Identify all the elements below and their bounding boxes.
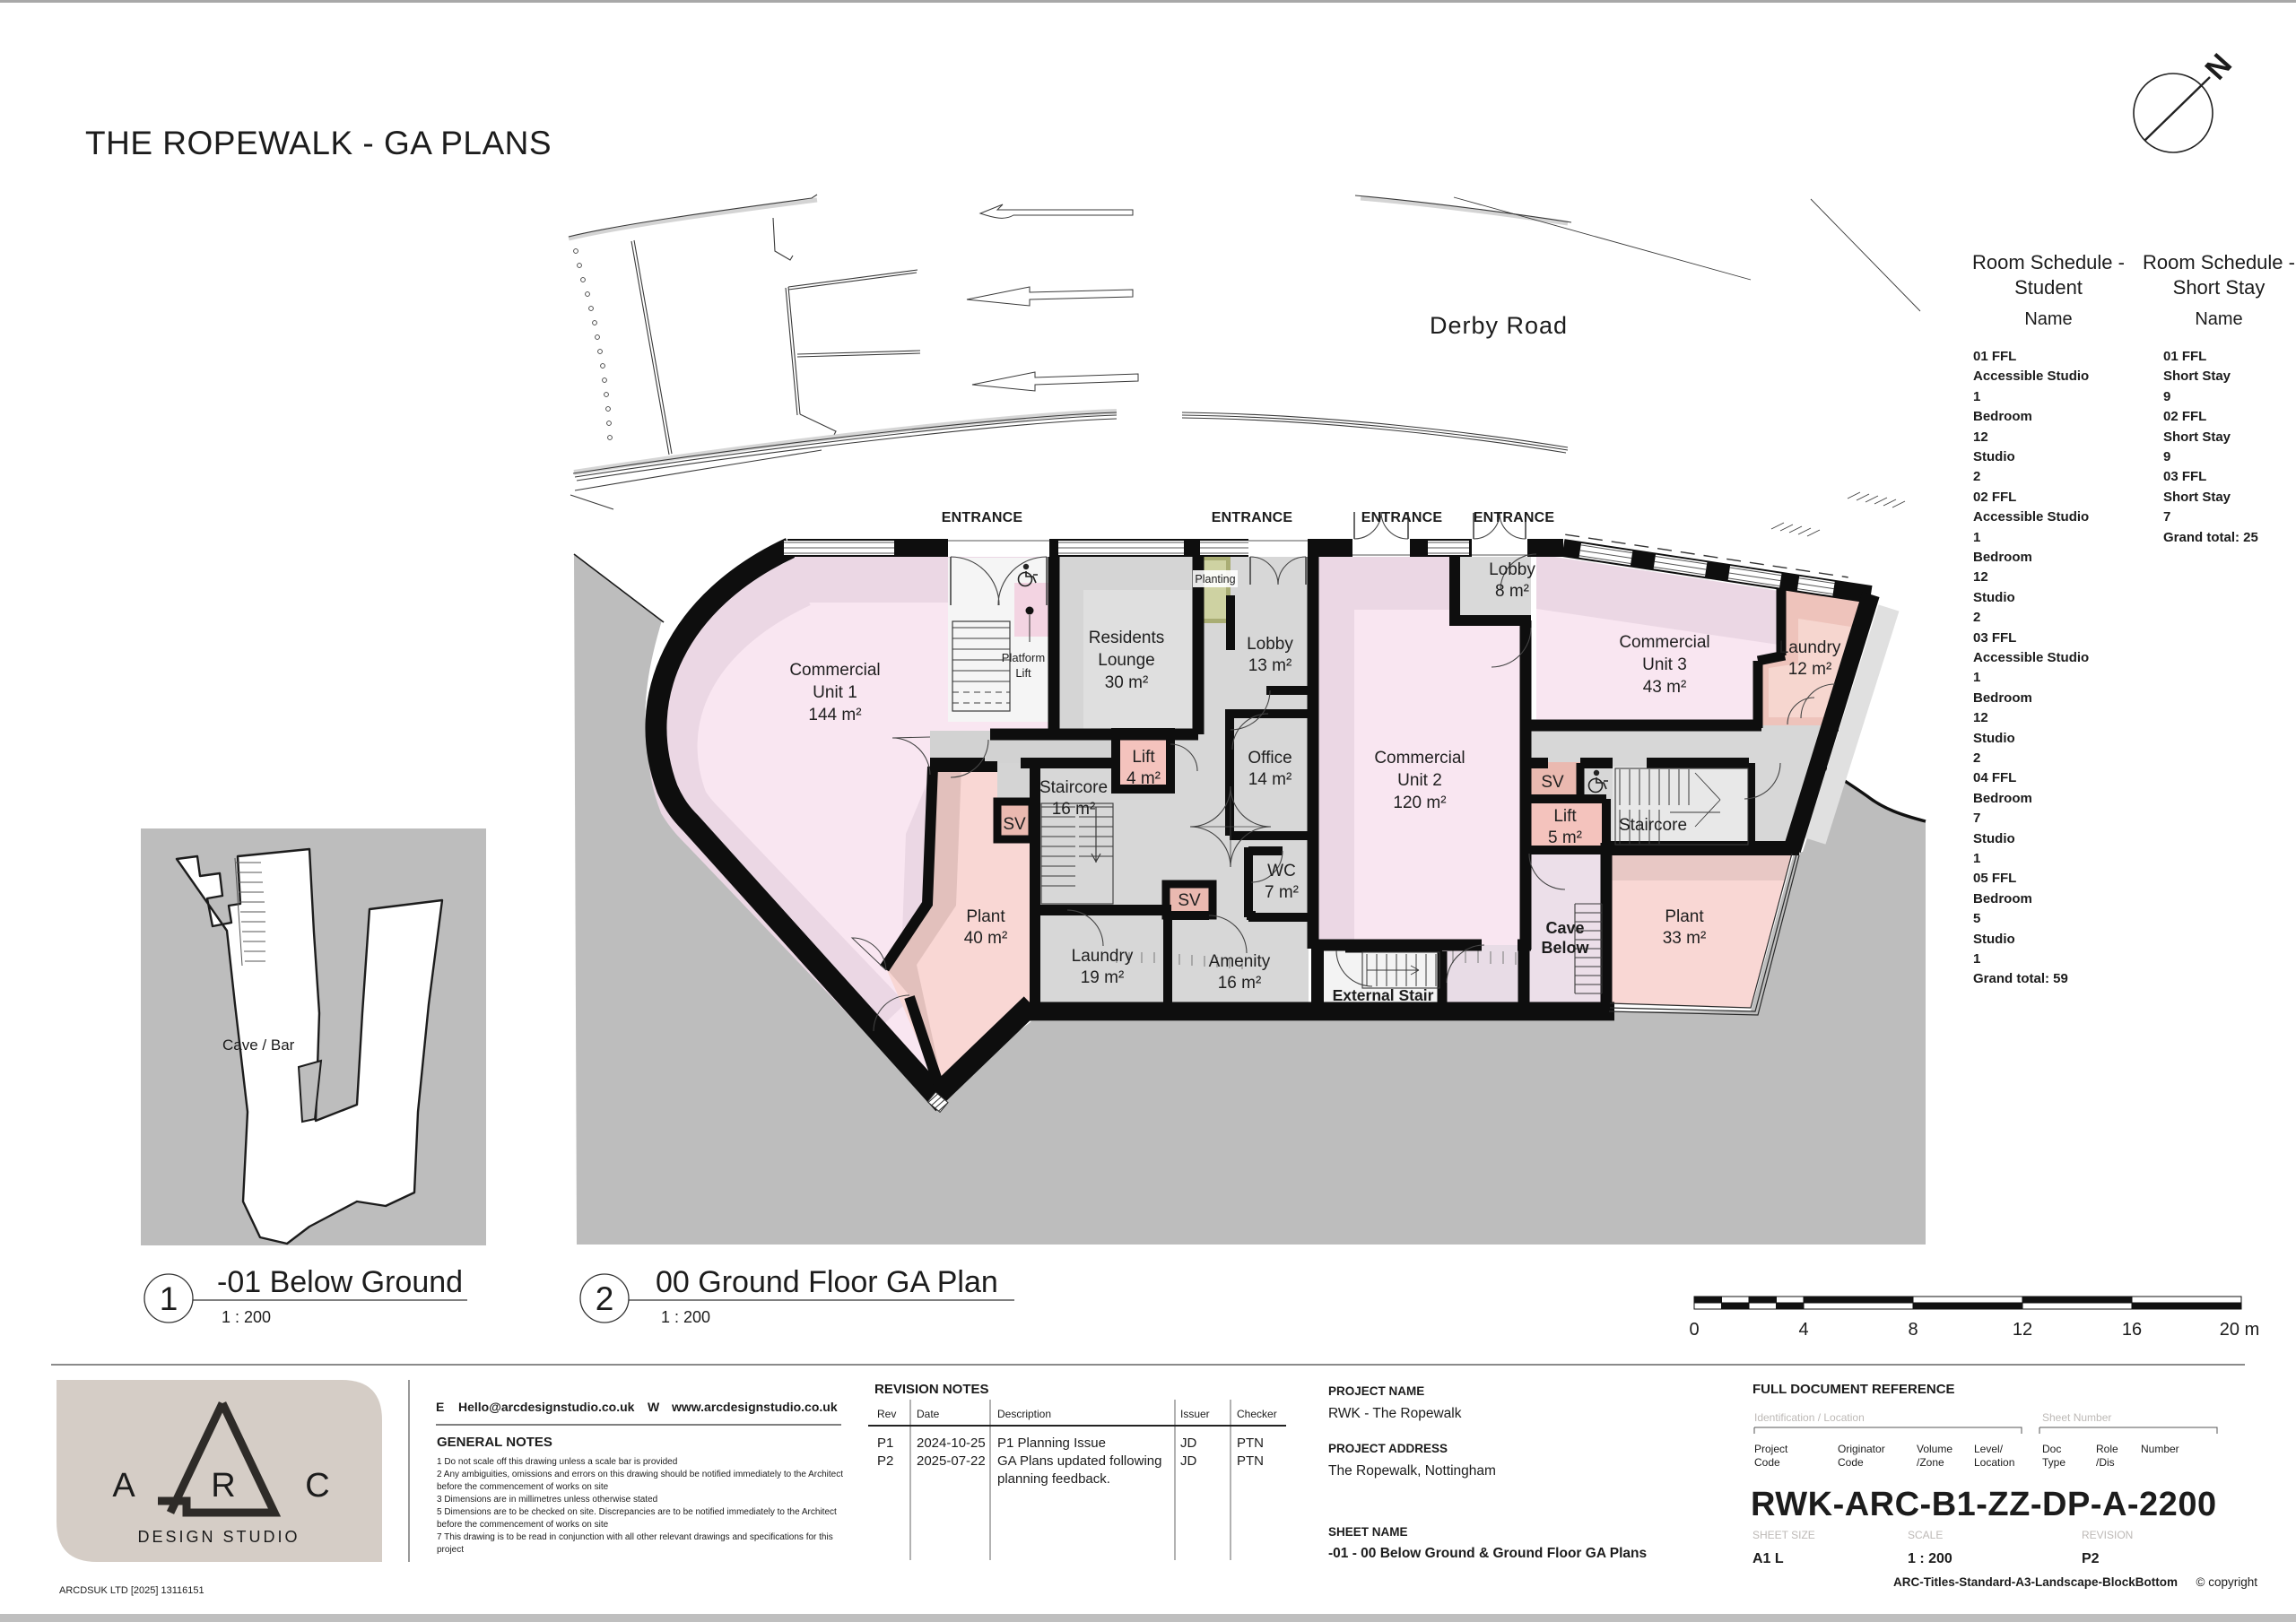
svg-text:REVISION: REVISION — [2082, 1529, 2133, 1541]
svg-text:Room Schedule -: Room Schedule - — [1972, 251, 2125, 273]
svg-text:5 m²: 5 m² — [1548, 828, 1582, 847]
svg-text:Unit 3: Unit 3 — [1642, 655, 1687, 674]
svg-text:19 m²: 19 m² — [1081, 968, 1125, 987]
svg-text:4: 4 — [1798, 1320, 1808, 1340]
svg-text:30 m²: 30 m² — [1105, 673, 1149, 692]
svg-text:2: 2 — [1973, 469, 1980, 484]
svg-text:www.arcdesignstudio.co.uk: www.arcdesignstudio.co.uk — [671, 1400, 838, 1414]
svg-text:Laundry: Laundry — [1072, 947, 1134, 966]
svg-text:Originator: Originator — [1838, 1443, 1885, 1455]
svg-text:P2: P2 — [877, 1453, 893, 1469]
svg-text:5 Dimensions are to be checked: 5 Dimensions are to be checked on site. … — [437, 1507, 837, 1517]
svg-text:12: 12 — [1973, 429, 1988, 445]
svg-text:PTN: PTN — [1237, 1453, 1264, 1469]
svg-text:Short Stay: Short Stay — [2173, 276, 2266, 299]
svg-text:ARC-Titles-Standard-A3-Landsca: ARC-Titles-Standard-A3-Landscape-BlockBo… — [1893, 1575, 2178, 1589]
svg-text:RWK-ARC-B1-ZZ-DP-A-2200: RWK-ARC-B1-ZZ-DP-A-2200 — [1751, 1486, 2217, 1523]
svg-text:A1 L: A1 L — [1752, 1551, 1784, 1566]
svg-text:REVISION NOTES: REVISION NOTES — [874, 1382, 989, 1397]
svg-text:12 m²: 12 m² — [1788, 660, 1832, 679]
svg-text:20 m: 20 m — [2220, 1320, 2259, 1340]
svg-text:Bedroom: Bedroom — [1973, 550, 2032, 565]
svg-text:Accessible Studio: Accessible Studio — [1973, 650, 2089, 665]
svg-text:7: 7 — [1973, 811, 1980, 826]
svg-text:13 m²: 13 m² — [1248, 656, 1292, 675]
svg-text:Level/: Level/ — [1974, 1443, 2004, 1455]
svg-text:Planting: Planting — [1195, 573, 1235, 585]
svg-text:40 m²: 40 m² — [964, 929, 1008, 948]
svg-text:planning feedback.: planning feedback. — [997, 1471, 1110, 1487]
svg-text:Studio: Studio — [1973, 831, 2015, 846]
svg-text:1: 1 — [1973, 389, 1980, 404]
svg-text:Description: Description — [997, 1408, 1051, 1420]
svg-text:before the commencement of wor: before the commencement of works on site — [437, 1482, 609, 1492]
svg-text:ENTRANCE: ENTRANCE — [1474, 510, 1555, 525]
svg-text:Studio: Studio — [1973, 932, 2015, 947]
svg-text:Sheet Number: Sheet Number — [2042, 1411, 2111, 1424]
svg-text:SHEET NAME: SHEET NAME — [1328, 1525, 1408, 1539]
svg-text:Bedroom: Bedroom — [1973, 690, 2032, 706]
svg-text:Grand total: 25: Grand total: 25 — [2163, 530, 2258, 545]
svg-text:Location: Location — [1974, 1456, 2014, 1469]
svg-text:1 Do not scale off this drawin: 1 Do not scale off this drawing unless a… — [437, 1457, 677, 1467]
svg-text:03 FFL: 03 FFL — [1973, 630, 2016, 646]
svg-text:4 m²: 4 m² — [1126, 769, 1161, 788]
svg-text:The Ropewalk, Nottingham: The Ropewalk, Nottingham — [1328, 1463, 1496, 1479]
svg-text:Name: Name — [2195, 309, 2242, 329]
svg-text:SV: SV — [1178, 891, 1201, 910]
svg-text:7 This drawing is to be read i: 7 This drawing is to be read in conjunct… — [437, 1532, 833, 1542]
svg-text:R: R — [211, 1467, 235, 1505]
svg-text:ENTRANCE: ENTRANCE — [1361, 510, 1443, 525]
svg-text:Lobby: Lobby — [1247, 635, 1293, 654]
svg-text:Accessible Studio: Accessible Studio — [1973, 509, 2089, 525]
svg-text:16 m²: 16 m² — [1218, 974, 1262, 993]
svg-text:P2: P2 — [2082, 1551, 2100, 1566]
svg-text:External Stair: External Stair — [1333, 986, 1434, 1004]
svg-text:Platform: Platform — [1002, 651, 1045, 664]
svg-text:01 FFL: 01 FFL — [2163, 349, 2206, 364]
svg-text:12: 12 — [1973, 569, 1988, 585]
svg-text:C: C — [305, 1467, 329, 1505]
svg-text:Derby Road: Derby Road — [1430, 312, 1568, 339]
svg-text:Unit 2: Unit 2 — [1397, 771, 1442, 790]
svg-text:Hello@arcdesignstudio.co.uk: Hello@arcdesignstudio.co.uk — [458, 1400, 635, 1414]
svg-text:12: 12 — [2013, 1320, 2032, 1340]
svg-text:Code: Code — [1754, 1456, 1780, 1469]
svg-text:FULL DOCUMENT REFERENCE: FULL DOCUMENT REFERENCE — [1752, 1382, 1955, 1397]
svg-text:120 m²: 120 m² — [1393, 794, 1446, 812]
svg-text:1: 1 — [1973, 530, 1980, 545]
svg-text:WC: WC — [1267, 862, 1296, 880]
svg-text:E: E — [436, 1400, 444, 1414]
svg-text:02 FFL: 02 FFL — [1973, 490, 2016, 505]
svg-text:Residents: Residents — [1089, 629, 1165, 647]
svg-text:8: 8 — [1908, 1320, 1918, 1340]
svg-text:Cave / Bar: Cave / Bar — [222, 1037, 295, 1054]
svg-text:05 FFL: 05 FFL — [1973, 871, 2016, 886]
svg-text:Studio: Studio — [1973, 731, 2015, 746]
svg-text:1: 1 — [1973, 851, 1980, 866]
svg-text:1: 1 — [1973, 951, 1980, 967]
svg-text:Lift: Lift — [1132, 748, 1155, 767]
svg-text:1 : 200: 1 : 200 — [661, 1308, 710, 1326]
svg-text:W: W — [648, 1400, 660, 1414]
svg-text:Lobby: Lobby — [1489, 560, 1535, 579]
svg-text:RWK - The Ropewalk: RWK - The Ropewalk — [1328, 1406, 1462, 1421]
svg-text:1: 1 — [160, 1280, 178, 1317]
svg-text:12: 12 — [1973, 710, 1988, 725]
svg-text:Accessible Studio: Accessible Studio — [1973, 369, 2089, 384]
svg-text:Grand total: 59: Grand total: 59 — [1973, 971, 2068, 986]
svg-text:Checker: Checker — [1237, 1408, 1277, 1420]
svg-text:Lounge: Lounge — [1098, 651, 1154, 670]
svg-text:SV: SV — [1003, 815, 1026, 834]
svg-text:Commercial: Commercial — [1374, 749, 1465, 768]
svg-text:Volume: Volume — [1917, 1443, 1952, 1455]
svg-text:/Zone: /Zone — [1917, 1456, 1944, 1469]
svg-text:9: 9 — [2163, 389, 2170, 404]
svg-text:Laundry: Laundry — [1779, 638, 1841, 657]
svg-text:16 m²: 16 m² — [1052, 800, 1096, 819]
svg-text:2: 2 — [596, 1280, 614, 1317]
svg-text:ARCDSUK LTD [2025] 13116151: ARCDSUK LTD [2025] 13116151 — [59, 1585, 204, 1596]
svg-text:00 Ground Floor GA Plan: 00 Ground Floor GA Plan — [656, 1265, 998, 1299]
svg-text:1 : 200: 1 : 200 — [1908, 1551, 1952, 1566]
svg-text:THE ROPEWALK - GA PLANS: THE ROPEWALK - GA PLANS — [85, 125, 552, 161]
svg-text:A: A — [112, 1467, 135, 1505]
svg-text:P1: P1 — [877, 1436, 893, 1451]
svg-text:SCALE: SCALE — [1908, 1529, 1943, 1541]
svg-text:JD: JD — [1180, 1436, 1197, 1451]
svg-text:Plant: Plant — [1665, 907, 1704, 926]
svg-text:9: 9 — [2163, 449, 2170, 464]
svg-text:Date: Date — [917, 1408, 940, 1420]
svg-text:Below: Below — [1541, 939, 1589, 957]
svg-text:Office: Office — [1248, 749, 1291, 768]
svg-text:Code: Code — [1838, 1456, 1864, 1469]
svg-text:PTN: PTN — [1237, 1436, 1264, 1451]
svg-text:04 FFL: 04 FFL — [1973, 770, 2016, 785]
svg-text:Project: Project — [1754, 1443, 1788, 1455]
svg-text:2025-07-22: 2025-07-22 — [917, 1453, 986, 1469]
svg-text:5: 5 — [1973, 911, 1980, 926]
svg-text:ENTRANCE: ENTRANCE — [1212, 510, 1293, 525]
svg-text:project: project — [437, 1545, 464, 1555]
svg-text:Name: Name — [2024, 309, 2072, 329]
svg-text:Short Stay: Short Stay — [2163, 369, 2231, 384]
svg-text:PROJECT NAME: PROJECT NAME — [1328, 1384, 1424, 1398]
svg-text:43 m²: 43 m² — [1643, 678, 1687, 697]
svg-text:1: 1 — [1973, 670, 1980, 685]
svg-text:-01 - 00 Below Ground & Ground: -01 - 00 Below Ground & Ground Floor GA … — [1328, 1546, 1647, 1561]
svg-text:/Dis: /Dis — [2096, 1456, 2115, 1469]
svg-text:Commercial: Commercial — [1619, 633, 1709, 652]
svg-text:2 Any ambiguities, omissions a: 2 Any ambiguities, omissions and errors … — [437, 1470, 843, 1479]
svg-text:Type: Type — [2042, 1456, 2066, 1469]
svg-text:Short Stay: Short Stay — [2163, 429, 2231, 445]
svg-text:Doc: Doc — [2042, 1443, 2061, 1455]
svg-text:3 Dimensions are in millimetre: 3 Dimensions are in millimetres unless o… — [437, 1495, 657, 1505]
svg-text:Rev: Rev — [877, 1408, 896, 1420]
svg-text:Student: Student — [2014, 276, 2083, 299]
svg-text:DESIGN STUDIO: DESIGN STUDIO — [137, 1528, 300, 1546]
svg-text:1 : 200: 1 : 200 — [222, 1308, 271, 1326]
svg-text:2: 2 — [1973, 610, 1980, 625]
svg-text:Room Schedule -: Room Schedule - — [2143, 251, 2295, 273]
svg-text:Staircore: Staircore — [1039, 778, 1108, 797]
svg-text:2: 2 — [1973, 750, 1980, 766]
svg-text:Cave: Cave — [1545, 919, 1584, 937]
svg-text:JD: JD — [1180, 1453, 1197, 1469]
svg-text:SHEET SIZE: SHEET SIZE — [1752, 1529, 1815, 1541]
svg-text:GA Plans updated following: GA Plans updated following — [997, 1453, 1161, 1469]
svg-text:-01 Below Ground: -01 Below Ground — [217, 1265, 463, 1299]
svg-text:Unit 1: Unit 1 — [813, 683, 857, 702]
svg-text:Role: Role — [2096, 1443, 2118, 1455]
svg-text:Lift: Lift — [1015, 666, 1031, 680]
svg-text:PROJECT ADDRESS: PROJECT ADDRESS — [1328, 1442, 1448, 1455]
svg-text:Plant: Plant — [966, 907, 1005, 926]
svg-text:Studio: Studio — [1973, 449, 2015, 464]
svg-text:7 m²: 7 m² — [1265, 883, 1299, 902]
svg-text:Bedroom: Bedroom — [1973, 791, 2032, 806]
svg-text:Bedroom: Bedroom — [1973, 891, 2032, 906]
svg-text:144 m²: 144 m² — [808, 706, 861, 724]
svg-text:7: 7 — [2163, 509, 2170, 525]
svg-text:16: 16 — [2122, 1320, 2142, 1340]
svg-text:Issuer: Issuer — [1180, 1408, 1210, 1420]
svg-text:Lift: Lift — [1553, 807, 1577, 826]
svg-text:33 m²: 33 m² — [1663, 929, 1707, 948]
svg-text:Number: Number — [2141, 1443, 2179, 1455]
svg-text:ENTRANCE: ENTRANCE — [942, 510, 1023, 525]
svg-text:Identification / Location: Identification / Location — [1754, 1411, 1865, 1424]
svg-text:Bedroom: Bedroom — [1973, 409, 2032, 424]
svg-text:Studio: Studio — [1973, 590, 2015, 605]
svg-text:Commercial: Commercial — [789, 661, 880, 680]
svg-text:© copyright: © copyright — [2196, 1575, 2258, 1589]
svg-text:8 m²: 8 m² — [1495, 582, 1529, 601]
svg-text:14 m²: 14 m² — [1248, 770, 1292, 789]
svg-text:P1 Planning Issue: P1 Planning Issue — [997, 1436, 1106, 1451]
svg-text:Amenity: Amenity — [1209, 952, 1271, 971]
svg-text:2024-10-25: 2024-10-25 — [917, 1436, 986, 1451]
svg-text:Staircore: Staircore — [1619, 816, 1687, 835]
svg-text:02 FFL: 02 FFL — [2163, 409, 2206, 424]
svg-text:before the commencement of wor: before the commencement of works on site — [437, 1520, 609, 1530]
svg-text:Short Stay: Short Stay — [2163, 490, 2231, 505]
svg-text:0: 0 — [1689, 1320, 1699, 1340]
svg-text:01 FFL: 01 FFL — [1973, 349, 2016, 364]
svg-text:03 FFL: 03 FFL — [2163, 469, 2206, 484]
svg-text:SV: SV — [1541, 773, 1564, 792]
svg-text:GENERAL NOTES: GENERAL NOTES — [437, 1435, 552, 1450]
